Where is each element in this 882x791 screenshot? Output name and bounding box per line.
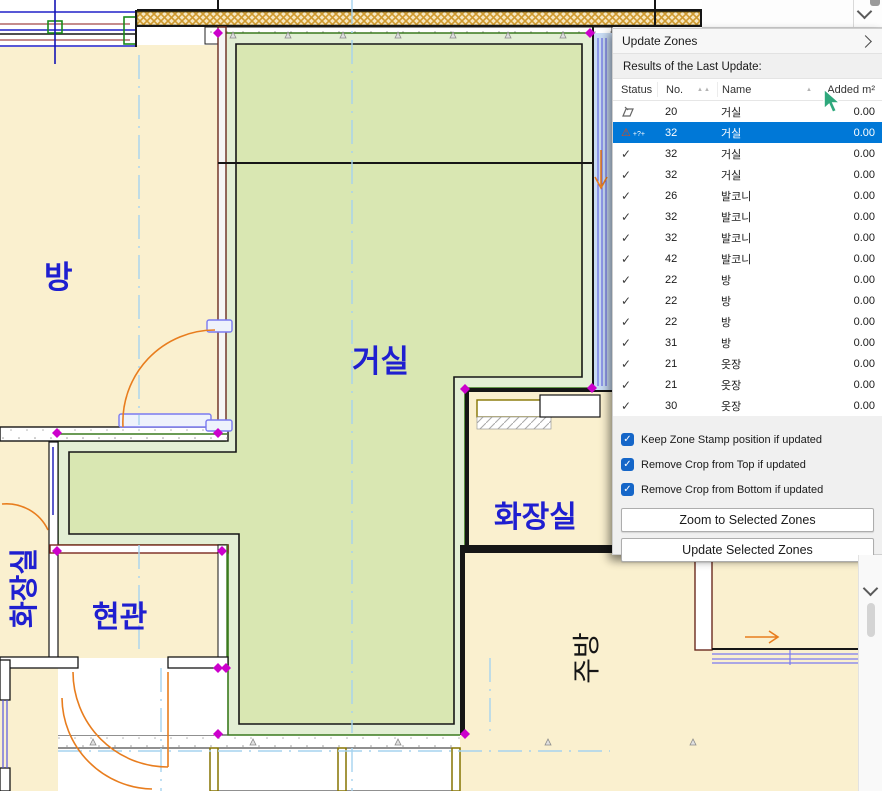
table-row[interactable]: ✓32발코니0.00 (613, 227, 882, 248)
row-zone-name: 발코니 (717, 209, 806, 225)
row-zone-name: 발코니 (717, 230, 806, 246)
label-bathroom-right: 화장실 (494, 492, 577, 536)
right-balcony-window (592, 27, 612, 390)
row-zone-number: 32 (657, 148, 697, 160)
row-zone-name: 방 (717, 272, 806, 288)
table-row[interactable]: ✓22방0.00 (613, 269, 882, 290)
row-added-area: 0.00 (822, 253, 882, 265)
vertical-scrollbar[interactable] (858, 555, 882, 791)
chevron-down-icon[interactable] (863, 581, 879, 597)
row-zone-name: 옷장 (717, 377, 806, 393)
column-no[interactable]: No. (657, 82, 697, 97)
column-name[interactable]: Name (717, 82, 806, 97)
row-zone-name: 발코니 (717, 188, 806, 204)
table-row[interactable]: ⚠+?+32거실0.00 (613, 122, 882, 143)
check-icon: ✓ (613, 378, 657, 392)
table-row[interactable]: ✓32거실0.00 (613, 143, 882, 164)
checkbox-checked-icon[interactable]: ✓ (621, 433, 634, 446)
porch-area (58, 668, 218, 735)
chevron-down-icon[interactable] (857, 4, 873, 20)
option-checkbox-row[interactable]: ✓Remove Crop from Top if updated (621, 452, 874, 477)
zone-results-table: Status No. ▲▲ Name ▲ Added m² 20거실0.00⚠+… (613, 78, 882, 416)
scrollbar-end (870, 0, 880, 6)
row-zone-number: 22 (657, 295, 697, 307)
update-selected-zones-button[interactable]: Update Selected Zones (621, 538, 874, 562)
checkbox-checked-icon[interactable]: ✓ (621, 458, 634, 471)
check-icon: ✓ (613, 315, 657, 329)
table-row[interactable]: ✓21옷장0.00 (613, 374, 882, 395)
row-zone-name: 방 (717, 314, 806, 330)
row-zone-name: 옷장 (717, 398, 806, 414)
row-added-area: 0.00 (822, 358, 882, 370)
row-zone-name: 방 (717, 335, 806, 351)
row-zone-name: 발코니 (717, 251, 806, 267)
options-checkboxes: ✓Keep Zone Stamp position if updated✓Rem… (613, 416, 882, 502)
check-icon: ✓ (613, 147, 657, 161)
stamp-icon (613, 106, 657, 118)
row-zone-number: 20 (657, 106, 697, 118)
row-zone-name: 거실 (717, 104, 806, 120)
scrollbar-thumb[interactable] (867, 603, 875, 637)
row-added-area: 0.00 (822, 295, 882, 307)
row-zone-number: 31 (657, 337, 697, 349)
row-added-area: 0.00 (822, 169, 882, 181)
table-row[interactable]: ✓26발코니0.00 (613, 185, 882, 206)
row-zone-name: 거실 (717, 167, 806, 183)
row-added-area: 0.00 (822, 316, 882, 328)
table-row[interactable]: ✓42발코니0.00 (613, 248, 882, 269)
row-added-area: 0.00 (822, 337, 882, 349)
check-icon: ✓ (613, 231, 657, 245)
archicad-window: 방 거실 화장실 현관 화장실 주방 Update Zones Results … (0, 0, 882, 791)
row-zone-number: 22 (657, 274, 697, 286)
column-status[interactable]: Status (613, 82, 657, 97)
row-added-area: 0.00 (822, 127, 882, 139)
drawing-scroll-corner (702, 0, 882, 28)
row-added-area: 0.00 (822, 379, 882, 391)
label-entrance: 현관 (92, 592, 147, 636)
row-zone-number: 42 (657, 253, 697, 265)
row-zone-name: 거실 (717, 125, 806, 141)
checkbox-checked-icon[interactable]: ✓ (621, 483, 634, 496)
table-row[interactable]: ✓31방0.00 (613, 332, 882, 353)
table-row[interactable]: ✓22방0.00 (613, 311, 882, 332)
row-added-area: 0.00 (822, 190, 882, 202)
table-body: 20거실0.00⚠+?+32거실0.00✓32거실0.00✓32거실0.00✓2… (613, 101, 882, 416)
table-row[interactable]: ✓32거실0.00 (613, 164, 882, 185)
check-icon: ✓ (613, 273, 657, 287)
option-checkbox-row[interactable]: ✓Remove Crop from Bottom if updated (621, 477, 874, 502)
checkbox-label: Keep Zone Stamp position if updated (641, 434, 822, 446)
row-added-area: 0.00 (822, 400, 882, 412)
panel-header: Update Zones (613, 29, 882, 54)
row-zone-number: 30 (657, 400, 697, 412)
warning-icon: ⚠+?+ (613, 126, 657, 139)
row-zone-number: 32 (657, 232, 697, 244)
sort-asc-icon[interactable]: ▲▲ (697, 87, 717, 93)
table-row[interactable]: ✓32발코니0.00 (613, 206, 882, 227)
label-living-room: 거실 (352, 336, 409, 381)
label-bathroom-left: 화장실 (1, 548, 43, 628)
check-icon: ✓ (613, 336, 657, 350)
row-added-area: 0.00 (822, 148, 882, 160)
zoom-to-selected-zones-button[interactable]: Zoom to Selected Zones (621, 508, 874, 532)
row-zone-number: 26 (657, 190, 697, 202)
results-label: Results of the Last Update: (613, 54, 882, 78)
table-row[interactable]: ✓22방0.00 (613, 290, 882, 311)
check-icon: ✓ (613, 252, 657, 266)
divider (853, 0, 854, 27)
check-icon: ✓ (613, 294, 657, 308)
row-zone-number: 21 (657, 379, 697, 391)
table-row[interactable]: ✓30옷장0.00 (613, 395, 882, 416)
row-zone-name: 거실 (717, 146, 806, 162)
sort-asc-icon[interactable]: ▲ (806, 87, 822, 93)
row-zone-number: 32 (657, 169, 697, 181)
table-row[interactable]: ✓21옷장0.00 (613, 353, 882, 374)
check-icon: ✓ (613, 210, 657, 224)
row-added-area: 0.00 (822, 232, 882, 244)
label-kitchen: 주방 (565, 632, 605, 684)
row-zone-number: 21 (657, 358, 697, 370)
row-added-area: 0.00 (822, 274, 882, 286)
row-zone-number: 22 (657, 316, 697, 328)
row-zone-name: 옷장 (717, 356, 806, 372)
check-icon: ✓ (613, 399, 657, 413)
option-checkbox-row[interactable]: ✓Keep Zone Stamp position if updated (621, 427, 874, 452)
panel-title: Update Zones (622, 34, 697, 48)
checkbox-label: Remove Crop from Bottom if updated (641, 484, 823, 496)
check-icon: ✓ (613, 357, 657, 371)
row-zone-name: 방 (717, 293, 806, 309)
mouse-cursor-icon (822, 88, 846, 116)
check-icon: ✓ (613, 189, 657, 203)
collapse-panel-icon[interactable] (859, 35, 872, 48)
checkbox-label: Remove Crop from Top if updated (641, 459, 806, 471)
row-added-area: 0.00 (822, 211, 882, 223)
check-icon: ✓ (613, 168, 657, 182)
label-room: 방 (44, 252, 73, 297)
row-zone-number: 32 (657, 211, 697, 223)
bottom-balcony-rooms (210, 748, 460, 791)
row-zone-number: 32 (657, 127, 697, 139)
